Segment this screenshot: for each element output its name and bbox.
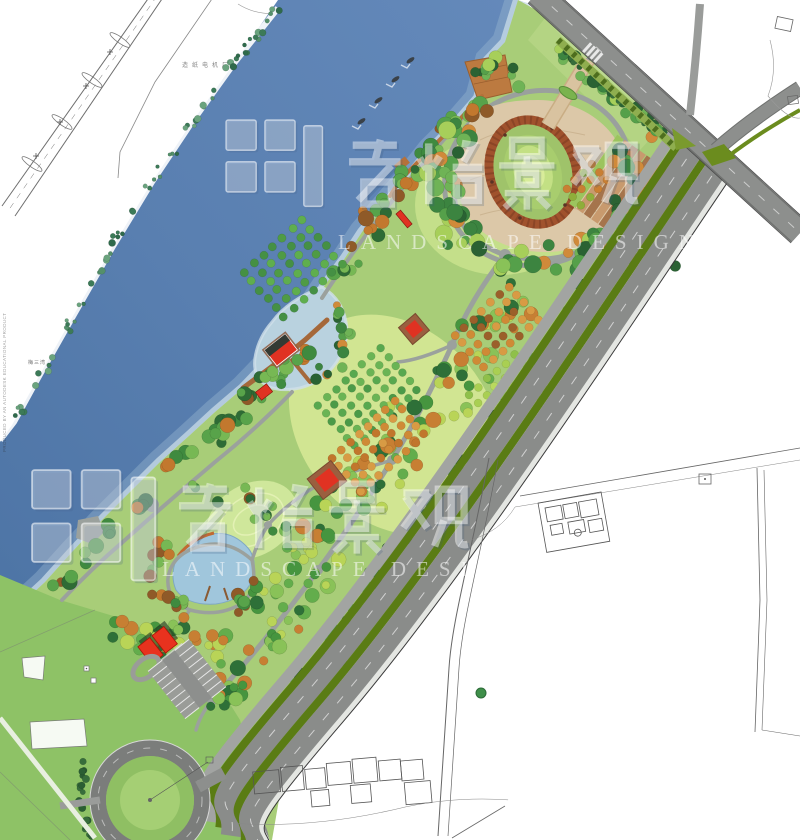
village-label: 梅三湾 bbox=[28, 359, 46, 366]
masterplan-svg: 造纸电机厂 梅三湾 PRODUCED BY AN AUTODESK EDUCAT… bbox=[0, 0, 800, 840]
watermark-en-top: LANDSCAPE DESIGN bbox=[338, 230, 704, 254]
cad-building-cluster-east bbox=[538, 492, 610, 552]
lone-tree bbox=[476, 688, 486, 698]
north-branch-road bbox=[690, 4, 700, 115]
factory-label: 造纸电机厂 bbox=[182, 61, 232, 69]
landscape-masterplan: 造纸电机厂 梅三湾 PRODUCED BY AN AUTODESK EDUCAT… bbox=[0, 0, 800, 840]
watermark-en-middle: LANDSCAPE DESIGN bbox=[162, 557, 528, 581]
cad-stamp: PRODUCED BY AN AUTODESK EDUCATIONAL PROD… bbox=[2, 313, 7, 452]
